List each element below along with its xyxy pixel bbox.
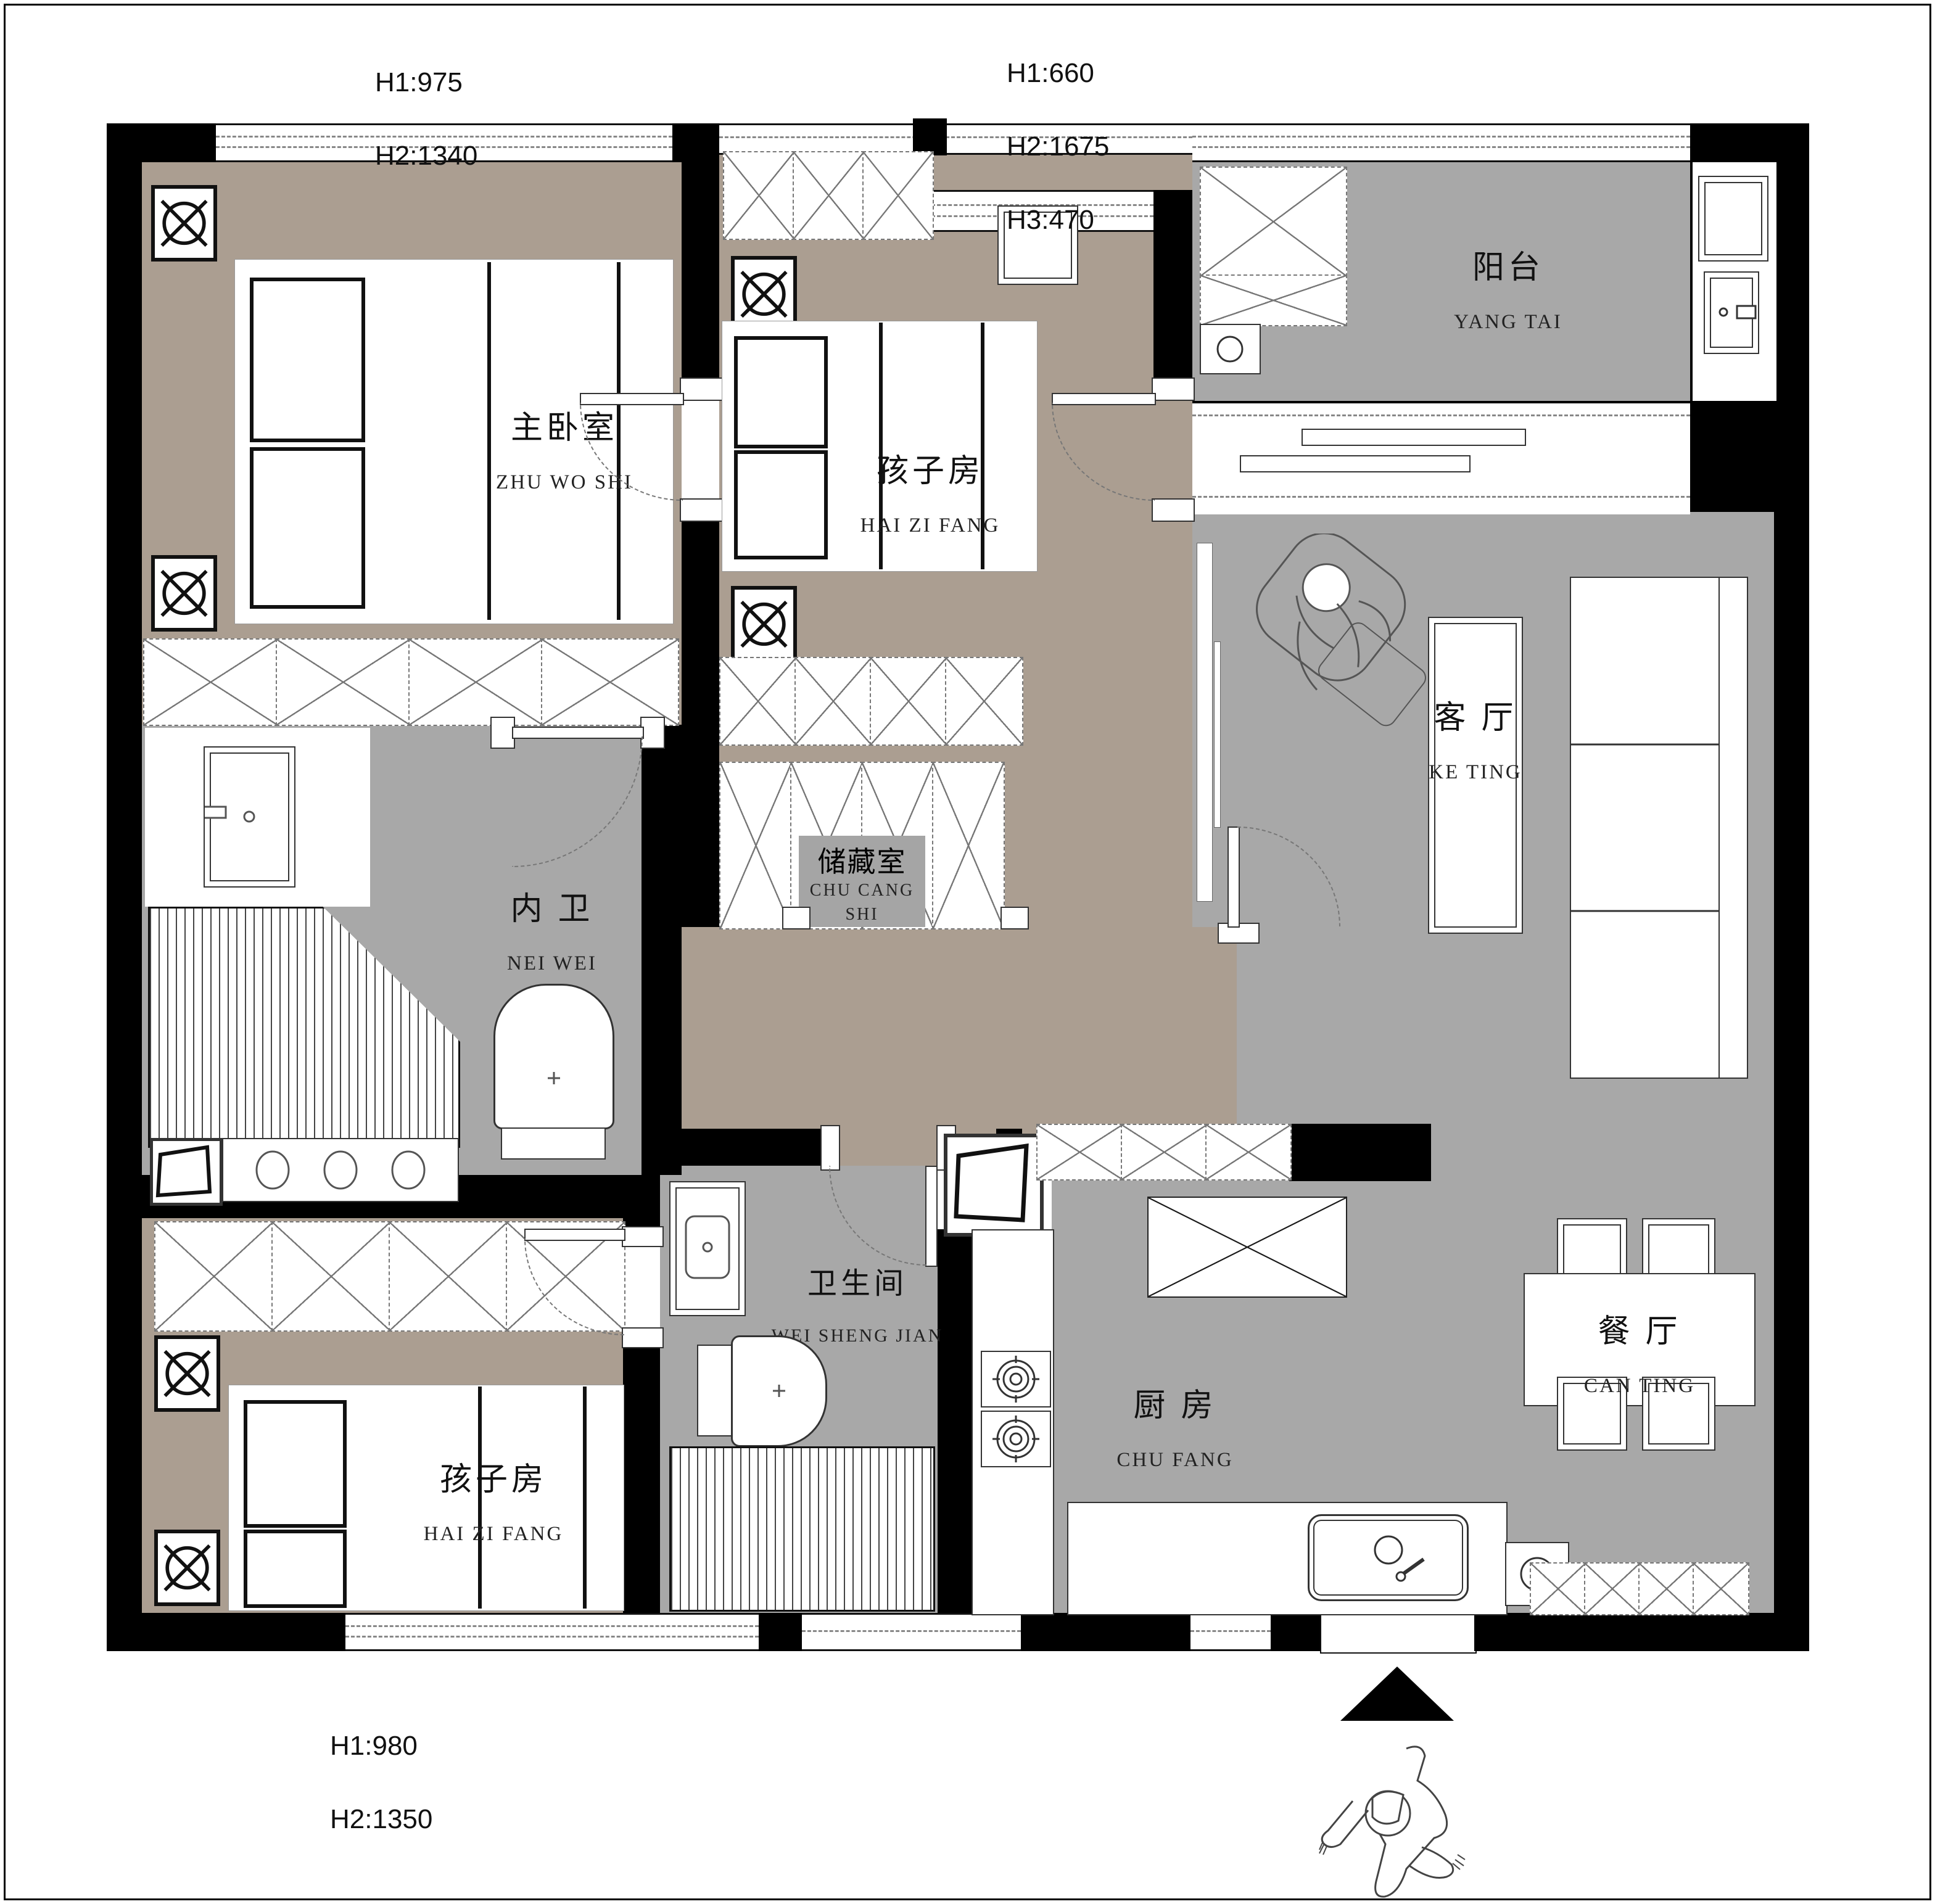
sliding-door-panel (1302, 429, 1526, 446)
dimension-note-top-middle: H1:660 H2:1675 H3:470 (1007, 19, 1109, 275)
balcony-drain-box (1200, 324, 1261, 374)
door-jamb (782, 907, 811, 929)
tv-console (1197, 543, 1213, 902)
bathroom-door-leaf (925, 1166, 938, 1267)
child-south-label-py: HAI ZI FANG (424, 1520, 564, 1548)
living-label: 客 厅 KE TING (1429, 678, 1522, 809)
closet-x-cell (723, 151, 795, 240)
master-nightstand (250, 278, 365, 442)
wardrobe-x-cell (408, 638, 543, 726)
wall-master-east-lower (682, 500, 719, 927)
bathroom-shower (669, 1446, 935, 1612)
kitchen-cabinet-x-cell (1205, 1124, 1292, 1181)
ceiling-fixture-icon (154, 1335, 220, 1412)
innerbath-counter (222, 1138, 459, 1202)
dim-line: H2:1675 (1007, 128, 1109, 165)
wall-left (107, 123, 142, 1651)
ceiling-fixture-icon (151, 185, 217, 262)
wall-balcony-block (1690, 401, 1774, 512)
door-jamb (622, 1327, 664, 1348)
dim-line: H3:470 (1007, 202, 1109, 238)
storage-shelf-x-cell (719, 762, 793, 929)
toilet-tank (501, 1127, 606, 1160)
master-nightstand (250, 447, 365, 609)
storage-shelf-x-cell (870, 657, 947, 746)
ceiling-fixture-icon (151, 555, 217, 632)
wardrobe-x-cell (154, 1221, 274, 1332)
window-balcony-north (1192, 123, 1690, 162)
fridge (1147, 1197, 1347, 1298)
dim-line: H1:660 (1007, 55, 1109, 91)
wardrobe-x-cell (276, 638, 411, 726)
stove-burner (981, 1411, 1051, 1467)
innerbath-label-py: NEI WEI (507, 949, 597, 978)
closet-x-cell (862, 151, 934, 240)
dimension-note-top-left: H1:975 H2:1340 (375, 28, 477, 211)
innerbath-label-zh: 内 卫 (507, 892, 597, 927)
toilet-bowl (493, 984, 614, 1129)
nightstand (244, 1530, 347, 1608)
entrance-opening (1320, 1613, 1477, 1654)
dining-label-py: CAN TING (1584, 1372, 1695, 1400)
wardrobe-x-cell (389, 1221, 508, 1332)
window-kitchen-south (1190, 1613, 1271, 1651)
walking-person-figure (1314, 1736, 1474, 1900)
wall-innerbath-east (642, 725, 682, 1175)
nightstand (734, 450, 828, 559)
stove-burner (981, 1351, 1051, 1407)
kitchen-label-zh: 厨 房 (1116, 1388, 1233, 1424)
wardrobe-x-cell (271, 1221, 391, 1332)
innerbath-hamper (150, 1138, 223, 1206)
storage-label-box: 储藏室 CHU CANG SHI (799, 836, 925, 927)
kitchen-label-py: CHU FANG (1116, 1446, 1233, 1474)
balcony-cabinet-x-cell (1200, 167, 1347, 277)
storage-label-py: CHU CANG SHI (799, 878, 925, 926)
wall-right (1774, 162, 1809, 1651)
innerbath-vanity (204, 746, 295, 888)
bed-divider-line (487, 262, 491, 620)
balcony-door-panel (1704, 271, 1759, 354)
shoe-cabinet-x-cell (1530, 1562, 1586, 1615)
child-north-label-py: HAI ZI FANG (860, 511, 1001, 540)
balcony-cabinet-x-cell (1200, 274, 1347, 326)
wall-bathroom-north (660, 1129, 839, 1166)
wall-bottom-5 (1474, 1613, 1809, 1651)
door-jamb (1152, 498, 1195, 522)
child-south-label: 孩子房 HAI ZI FANG (424, 1440, 564, 1570)
wall-master-east-upper (682, 162, 719, 398)
wall-kitchen-north (1289, 1124, 1431, 1181)
dining-label-zh: 餐 厅 (1584, 1314, 1695, 1350)
ceiling-fixture-icon (154, 1530, 220, 1606)
wall-top-right-corner (1690, 123, 1809, 162)
shoe-cabinet-x-cell (1693, 1562, 1749, 1615)
door-jamb (622, 1226, 664, 1247)
dim-line: H2:1340 (375, 138, 477, 174)
window-child-south (345, 1613, 759, 1651)
balcony-label-py: YANG TAI (1454, 308, 1562, 336)
shoe-cabinet-x-cell (1584, 1562, 1641, 1615)
door-jamb (820, 1125, 840, 1171)
ceiling-fixture-icon (731, 586, 797, 662)
living-label-zh: 客 厅 (1429, 701, 1522, 736)
balcony-label-zh: 阳台 (1454, 250, 1562, 286)
entrance-arrow (1340, 1667, 1454, 1721)
storage-shelf-x-cell (945, 657, 1023, 746)
storage-shelf-x-cell (932, 762, 1005, 929)
door-jamb (1001, 907, 1029, 929)
door-jamb (680, 498, 723, 522)
kitchen-label: 厨 房 CHU FANG (1116, 1366, 1233, 1496)
wall-top-left-corner (107, 123, 216, 162)
nightstand (244, 1400, 347, 1528)
door-jamb (1152, 377, 1195, 401)
bathroom-window-box (944, 1134, 1044, 1237)
dim-line: H1:980 (330, 1728, 432, 1764)
wall-bottom-1 (107, 1613, 345, 1651)
bathroom-label-zh: 卫生间 (772, 1268, 944, 1301)
tv-panel (1214, 641, 1221, 828)
bathroom-vanity (669, 1181, 746, 1316)
storage-shelf-x-cell (794, 657, 872, 746)
closet-x-cell (793, 151, 865, 240)
innerbath-label: 内 卫 NEI WEI (507, 870, 597, 1000)
kitchen-cabinet-x-cell (1036, 1124, 1123, 1181)
kitchen-cabinet-x-cell (1121, 1124, 1208, 1181)
wardrobe-x-cell (143, 638, 278, 726)
child-south-label-zh: 孩子房 (424, 1462, 564, 1498)
wall-bottom-4 (1271, 1613, 1320, 1651)
person-on-armchair-figure (1231, 534, 1440, 737)
storage-shelf-x-cell (719, 657, 797, 746)
bed-divider-line (583, 1387, 587, 1609)
toilet-tank (697, 1345, 733, 1436)
dining-label: 餐 厅 CAN TING (1584, 1292, 1695, 1422)
living-label-py: KE TING (1429, 758, 1522, 786)
wardrobe-x-cell (541, 638, 679, 726)
column-north (913, 118, 947, 155)
door-jamb (640, 717, 665, 749)
dim-line: H2:1350 (330, 1801, 432, 1837)
door-jamb (490, 717, 515, 749)
child-north-label: 孩子房 HAI ZI FANG (860, 432, 1001, 562)
wall-bottom-2 (759, 1613, 802, 1651)
wall-child-north-east-a (1153, 190, 1192, 398)
floor-plan: 阳台 YANG TAI 主卧室 ZHU WO SHI (0, 0, 1935, 1904)
window-bathroom-south (802, 1613, 1021, 1651)
wall-bottom-3 (1021, 1613, 1190, 1651)
sofa (1570, 577, 1748, 1079)
wall-child-south-east-b (623, 1335, 660, 1613)
toilet-bowl (731, 1335, 827, 1447)
storage-label-zh: 储藏室 (799, 847, 925, 878)
dim-line: H1:975 (375, 64, 477, 101)
nightstand (734, 336, 828, 448)
washing-machine (1698, 176, 1768, 262)
dimension-note-bottom-left: H1:980 H2:1350 (330, 1691, 432, 1874)
door-jamb (680, 377, 723, 401)
wall-top-block (672, 123, 719, 162)
shoe-cabinet-x-cell (1638, 1562, 1695, 1615)
window-band-north (719, 123, 1192, 155)
child-north-label-zh: 孩子房 (860, 454, 1001, 489)
balcony-label: 阳台 YANG TAI (1454, 228, 1562, 358)
sliding-door-panel (1240, 455, 1471, 472)
kitchen-sink (1308, 1514, 1469, 1601)
